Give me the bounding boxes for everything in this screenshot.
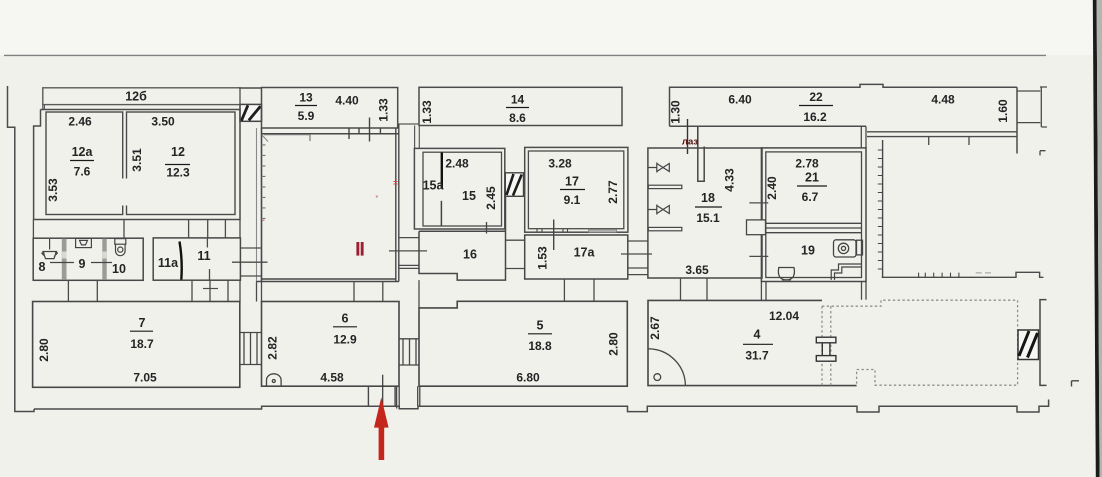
svg-text:1.53: 1.53 [536,246,550,270]
svg-text:1.33: 1.33 [377,98,391,122]
svg-text:4: 4 [754,328,761,342]
svg-text:1.30: 1.30 [669,100,683,124]
svg-text:6: 6 [342,312,349,326]
svg-text:12б: 12б [125,90,147,104]
svg-text:8.6: 8.6 [509,111,526,125]
svg-text:15.1: 15.1 [696,211,720,225]
svg-text:2.80: 2.80 [37,338,51,362]
svg-text:лаз: лаз [682,137,698,148]
svg-text:11a: 11a [158,256,179,270]
svg-text:3.28: 3.28 [548,157,572,171]
svg-text:10: 10 [112,262,126,276]
svg-text:2.46: 2.46 [68,115,92,129]
svg-text:1.60: 1.60 [996,99,1010,123]
svg-text:2.77: 2.77 [606,180,620,204]
svg-text:17: 17 [565,175,579,189]
svg-text:3.65: 3.65 [685,263,709,277]
svg-text:6.7: 6.7 [802,190,819,204]
svg-text:2.45: 2.45 [484,186,498,210]
svg-text:7.05: 7.05 [133,371,157,385]
svg-text:12a: 12a [72,145,94,159]
svg-text:2.80: 2.80 [607,332,621,356]
svg-text:16.2: 16.2 [803,110,827,124]
svg-text:22: 22 [809,90,823,104]
svg-text:3.50: 3.50 [151,115,175,129]
svg-text:14: 14 [511,93,525,107]
svg-text:2.82: 2.82 [266,336,280,360]
svg-text:8: 8 [39,260,46,274]
svg-text:31.7: 31.7 [745,349,769,363]
svg-text:12: 12 [171,145,185,159]
svg-text:6.40: 6.40 [728,93,752,107]
svg-text:4.40: 4.40 [335,94,359,108]
svg-text:2.40: 2.40 [765,176,779,200]
svg-text:18.7: 18.7 [130,337,154,351]
svg-text:4.33: 4.33 [723,168,737,192]
svg-text:16: 16 [463,248,477,262]
svg-text:13: 13 [299,91,313,105]
svg-text:9: 9 [79,257,86,271]
svg-text:11: 11 [197,249,210,263]
svg-text:6.80: 6.80 [516,371,540,385]
svg-text:12.9: 12.9 [333,333,357,347]
svg-text:4.58: 4.58 [320,371,344,385]
svg-text:3.53: 3.53 [46,178,60,202]
svg-text:7.6: 7.6 [74,165,91,179]
svg-text:9.1: 9.1 [564,193,581,207]
svg-text:12.04: 12.04 [769,309,799,323]
svg-text:19: 19 [801,244,815,258]
svg-text:15a: 15a [423,179,445,193]
svg-text:2.67: 2.67 [648,316,662,340]
svg-text:15: 15 [462,189,476,203]
svg-text:2.48: 2.48 [445,157,469,171]
svg-text:18.8: 18.8 [528,339,552,353]
svg-text:4.48: 4.48 [931,93,955,107]
svg-text:17a: 17a [574,246,596,260]
svg-text:12.3: 12.3 [166,166,190,180]
svg-text:5.9: 5.9 [298,109,315,123]
svg-text:7: 7 [139,316,146,330]
svg-text:18: 18 [701,191,715,205]
svg-text:2.78: 2.78 [795,157,819,171]
svg-text:3.51: 3.51 [130,148,144,172]
svg-text:1.33: 1.33 [420,100,434,124]
svg-text:5: 5 [537,319,544,333]
svg-text:21: 21 [805,171,819,185]
